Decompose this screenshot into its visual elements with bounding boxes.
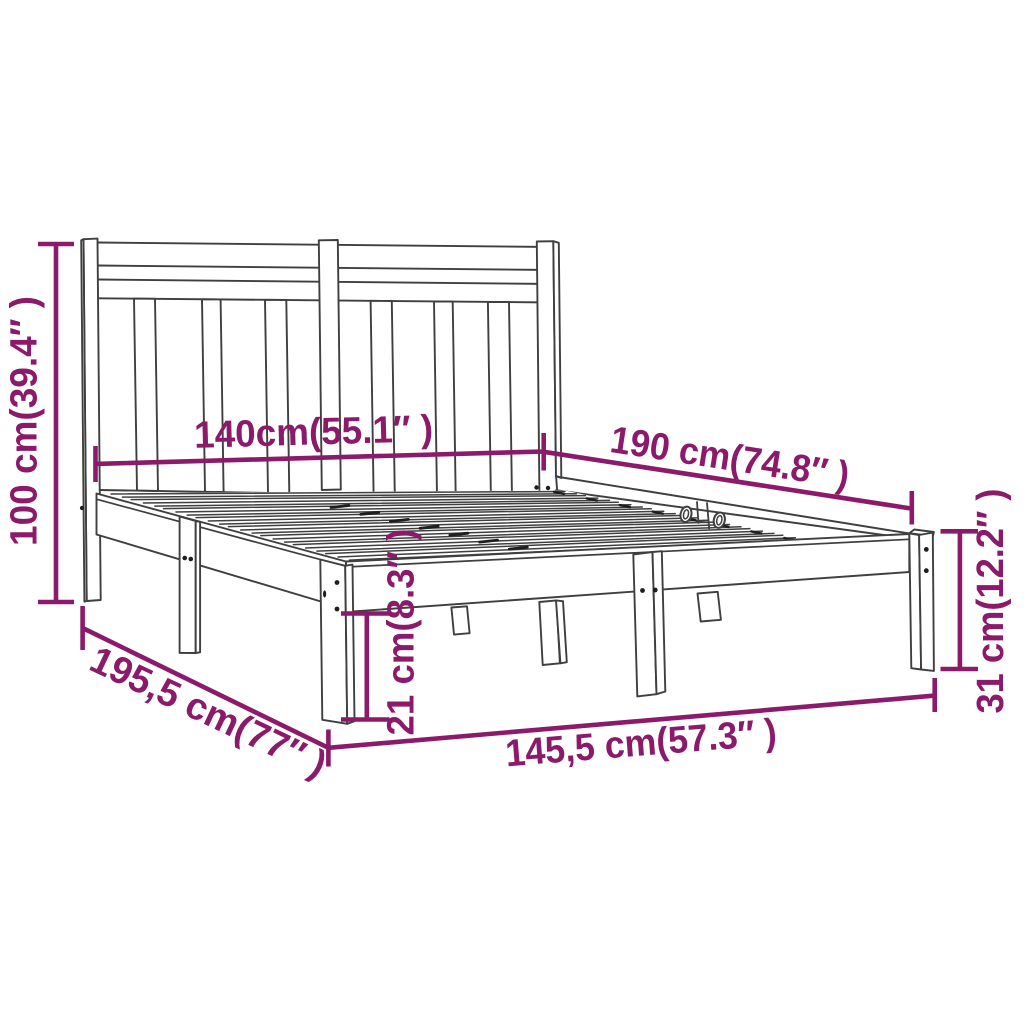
svg-text:21 cm(8.3″ ): 21 cm(8.3″ ): [381, 529, 423, 736]
svg-text:31 cm(12.2″ ): 31 cm(12.2″ ): [970, 489, 1012, 714]
svg-text:140cm(55.1″ ): 140cm(55.1″ ): [194, 408, 434, 457]
svg-text:100 cm(39.4″ ): 100 cm(39.4″ ): [4, 296, 46, 546]
